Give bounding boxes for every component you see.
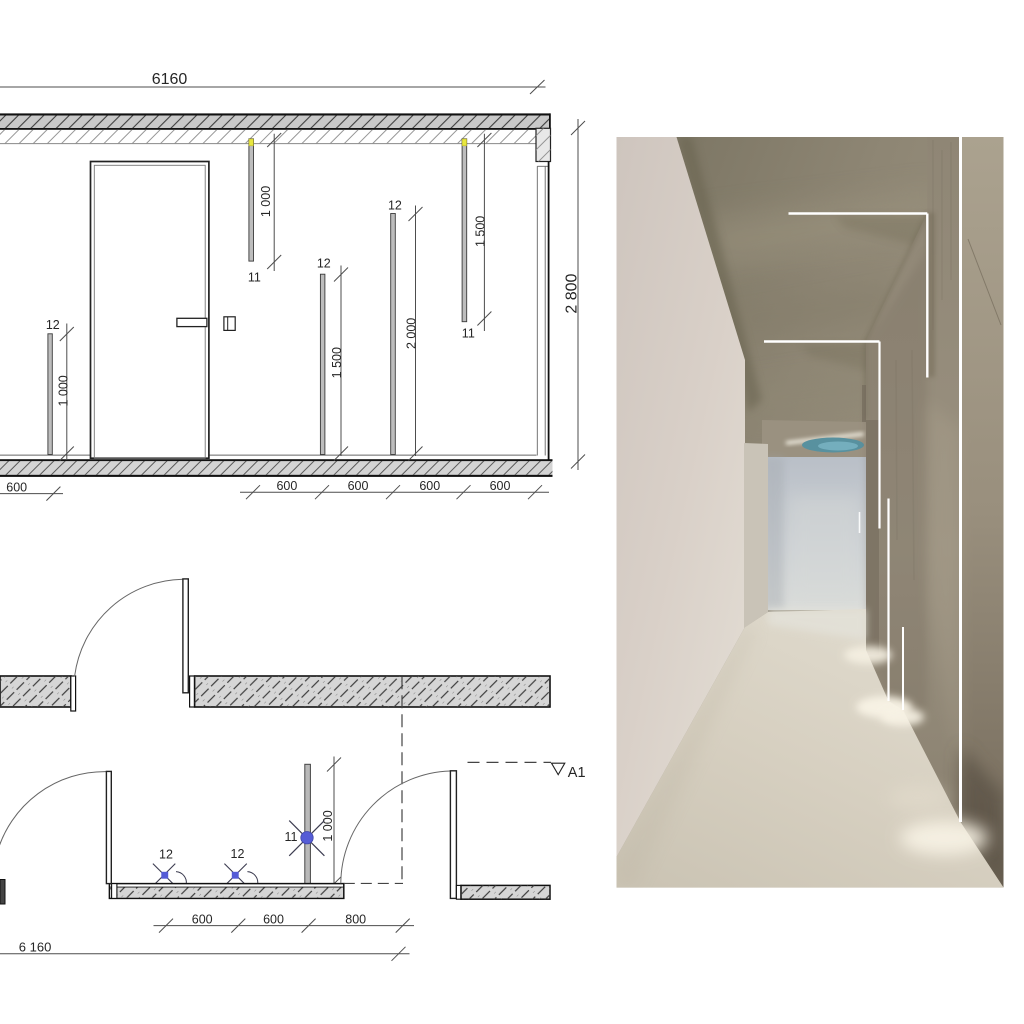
svg-text:600: 600 xyxy=(419,479,440,493)
svg-text:11: 11 xyxy=(248,271,261,285)
svg-text:1 500: 1 500 xyxy=(474,216,488,247)
svg-text:600: 600 xyxy=(490,479,511,493)
svg-text:12: 12 xyxy=(317,256,331,270)
svg-text:600: 600 xyxy=(6,480,27,494)
svg-text:600: 600 xyxy=(263,913,284,927)
svg-text:600: 600 xyxy=(276,479,297,493)
svg-text:A1: A1 xyxy=(568,765,586,781)
svg-text:12: 12 xyxy=(46,318,60,332)
svg-text:2 000: 2 000 xyxy=(404,318,418,349)
svg-text:1 000: 1 000 xyxy=(259,186,273,217)
svg-text:600: 600 xyxy=(192,913,213,927)
svg-text:6 160: 6 160 xyxy=(19,940,52,955)
svg-text:2 800: 2 800 xyxy=(563,273,580,313)
svg-text:1 500: 1 500 xyxy=(330,347,344,378)
svg-text:12: 12 xyxy=(231,847,245,861)
svg-text:800: 800 xyxy=(345,913,366,927)
svg-text:600: 600 xyxy=(348,479,369,493)
svg-text:11: 11 xyxy=(462,327,475,341)
svg-text:11: 11 xyxy=(285,830,298,844)
svg-text:12: 12 xyxy=(159,847,173,861)
svg-text:1 000: 1 000 xyxy=(57,375,71,406)
svg-text:12: 12 xyxy=(388,198,402,212)
svg-text:6160: 6160 xyxy=(152,71,188,88)
svg-text:1 000: 1 000 xyxy=(321,810,335,841)
